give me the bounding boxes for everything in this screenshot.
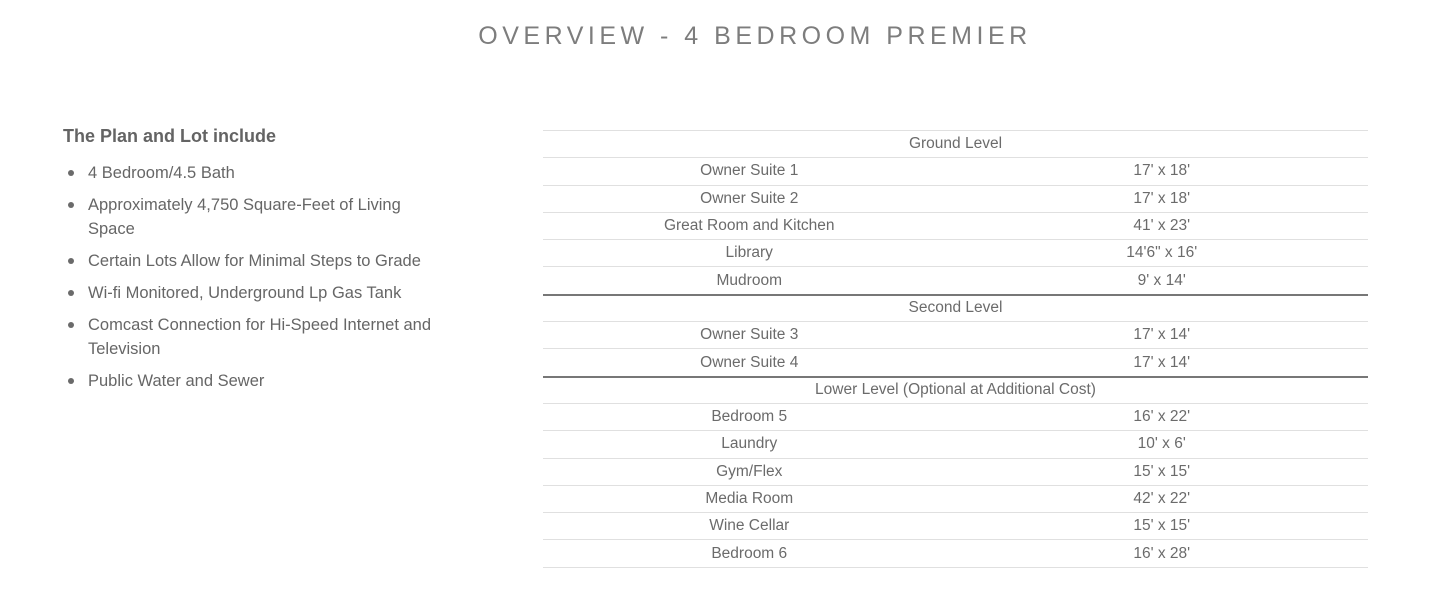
table-section-header: Ground Level [543,130,1368,157]
plan-and-lot-panel: The Plan and Lot include 4 Bedroom/4.5 B… [63,126,448,401]
room-name-cell: Owner Suite 2 [543,186,956,212]
room-name-cell: Owner Suite 3 [543,322,956,348]
page-title: OVERVIEW - 4 BEDROOM PREMIER [478,22,1031,51]
room-name-cell: Media Room [543,486,956,512]
room-name-cell: Laundry [543,431,956,457]
list-item: Certain Lots Allow for Minimal Steps to … [63,249,448,273]
table-row: Gym/Flex15' x 15' [543,458,1368,485]
table-section-header: Second Level [543,294,1368,321]
room-name-cell: Bedroom 6 [543,540,956,566]
room-size-cell: 16' x 22' [956,404,1369,430]
list-item: Comcast Connection for Hi-Speed Internet… [63,313,448,361]
room-name-cell: Owner Suite 1 [543,158,956,184]
plan-list: 4 Bedroom/4.5 BathApproximately 4,750 Sq… [63,161,448,393]
list-item: 4 Bedroom/4.5 Bath [63,161,448,185]
table-row: Owner Suite 217' x 18' [543,185,1368,212]
room-size-cell: 42' x 22' [956,486,1369,512]
table-row: Owner Suite 117' x 18' [543,157,1368,184]
table-row: Mudroom9' x 14' [543,266,1368,293]
room-size-cell: 10' x 6' [956,431,1369,457]
table-row: Bedroom 616' x 28' [543,539,1368,566]
table-row: Media Room42' x 22' [543,485,1368,512]
room-name-cell: Wine Cellar [543,513,956,539]
room-name-cell: Bedroom 5 [543,404,956,430]
room-name-cell: Gym/Flex [543,459,956,485]
table-row: Wine Cellar15' x 15' [543,512,1368,539]
room-name-cell: Owner Suite 4 [543,349,956,375]
list-item-text: Public Water and Sewer [88,369,440,393]
table-row: Bedroom 516' x 22' [543,403,1368,430]
room-size-cell: 17' x 18' [956,158,1369,184]
table-row: Great Room and Kitchen41' x 23' [543,212,1368,239]
bullet-icon [68,170,74,176]
plan-heading: The Plan and Lot include [63,126,448,147]
list-item-text: Approximately 4,750 Square-Feet of Livin… [88,193,440,241]
bullet-icon [68,258,74,264]
room-size-cell: 15' x 15' [956,513,1369,539]
list-item: Wi-fi Monitored, Underground Lp Gas Tank [63,281,448,305]
room-name-cell: Library [543,240,956,266]
room-size-cell: 9' x 14' [956,267,1369,293]
bullet-icon [68,202,74,208]
bullet-icon [68,322,74,328]
room-dimensions-table: Ground LevelOwner Suite 117' x 18'Owner … [543,130,1368,568]
list-item: Public Water and Sewer [63,369,448,393]
table-row: Laundry10' x 6' [543,430,1368,457]
room-size-cell: 14'6" x 16' [956,240,1369,266]
list-item-text: 4 Bedroom/4.5 Bath [88,161,440,185]
list-item-text: Comcast Connection for Hi-Speed Internet… [88,313,440,361]
room-size-cell: 17' x 14' [956,322,1369,348]
room-name-cell: Great Room and Kitchen [543,213,956,239]
list-item-text: Wi-fi Monitored, Underground Lp Gas Tank [88,281,440,305]
room-size-cell: 17' x 18' [956,186,1369,212]
list-item-text: Certain Lots Allow for Minimal Steps to … [88,249,440,273]
table-row: Owner Suite 417' x 14' [543,348,1368,375]
room-size-cell: 15' x 15' [956,459,1369,485]
table-section-header: Lower Level (Optional at Additional Cost… [543,376,1368,403]
table-row: Library14'6" x 16' [543,239,1368,266]
room-name-cell: Mudroom [543,267,956,293]
bullet-icon [68,290,74,296]
room-size-cell: 17' x 14' [956,349,1369,375]
room-size-cell: 16' x 28' [956,540,1369,566]
bullet-icon [68,378,74,384]
list-item: Approximately 4,750 Square-Feet of Livin… [63,193,448,241]
table-row: Owner Suite 317' x 14' [543,321,1368,348]
room-size-cell: 41' x 23' [956,213,1369,239]
